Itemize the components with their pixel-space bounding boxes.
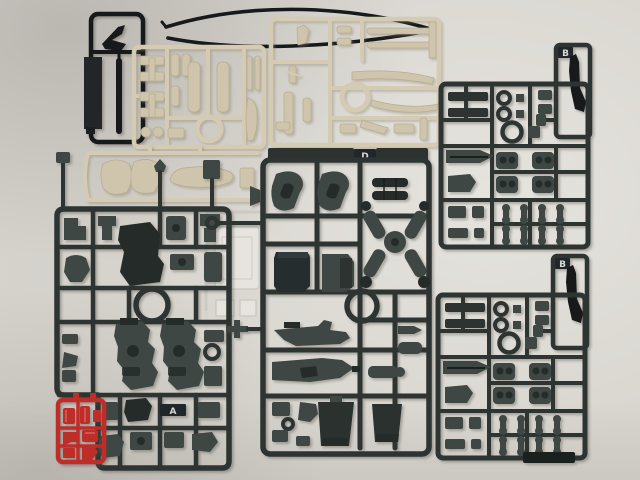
leg-cylinder-part xyxy=(188,62,200,112)
tank-part xyxy=(170,167,233,188)
leg-cylinder-part xyxy=(217,62,229,112)
bottom-tab-part xyxy=(523,452,575,463)
sprue-letter-b-bottom: B xyxy=(559,260,566,270)
red-parts-cluster xyxy=(63,406,101,460)
photo-canvas: A D xyxy=(0,0,640,480)
skirt-armor-part xyxy=(318,396,354,446)
shield-half-part xyxy=(101,160,132,194)
model-kit-sprues-photo: A D xyxy=(0,0,640,480)
rod-part xyxy=(116,58,122,134)
sprue-letter-a: A xyxy=(170,407,177,417)
dark-plate-part xyxy=(84,57,102,129)
sprue-letter-b-top: B xyxy=(562,49,569,59)
skirt-armor-part xyxy=(372,404,402,442)
